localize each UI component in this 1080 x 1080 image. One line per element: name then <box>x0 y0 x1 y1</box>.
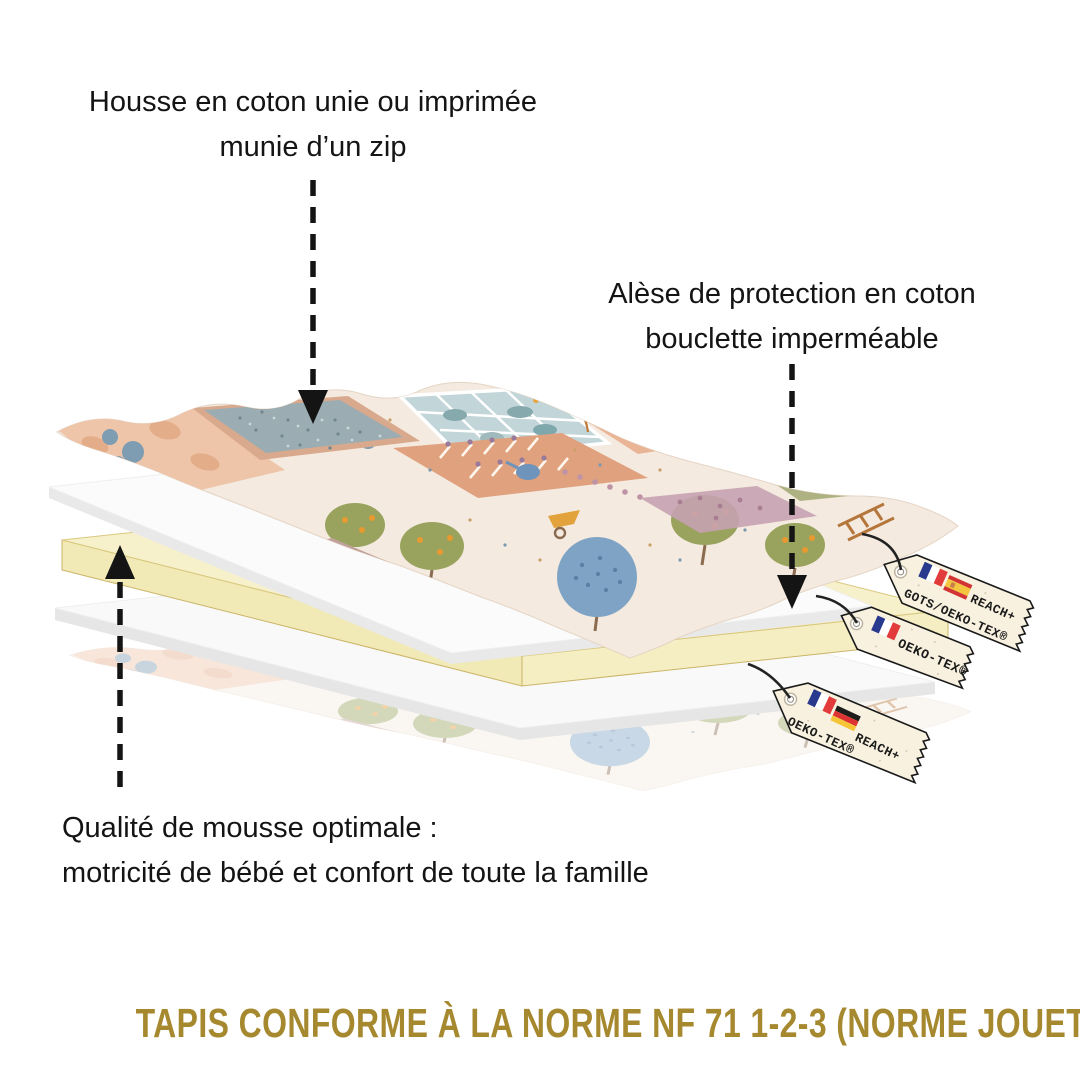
caption-protector: Alèse de protection en coton bouclette i… <box>567 272 1017 362</box>
arrow-cover <box>298 180 328 424</box>
caption-cover-line1: Housse en coton unie ou imprimée <box>38 80 588 125</box>
caption-cover: Housse en coton unie ou imprimée munie d… <box>38 80 588 170</box>
caption-protector-line2: bouclette imperméable <box>567 317 1017 362</box>
caption-cover-line2: munie d’un zip <box>38 125 588 170</box>
caption-foam: Qualité de mousse optimale : motricité d… <box>62 806 802 896</box>
caption-foam-line1: Qualité de mousse optimale : <box>62 806 802 851</box>
infographic-canvas: REACH+ GOTS/OEKO-TEX® OEKO-TEX® <box>0 0 1080 1080</box>
caption-foam-line2: motricité de bébé et confort de toute la… <box>62 851 802 896</box>
conformity-banner-text: TAPIS CONFORME À LA NORME NF 71 1-2-3 (N… <box>136 1000 1080 1047</box>
conformity-banner: TAPIS CONFORME À LA NORME NF 71 1-2-3 (N… <box>0 1000 1080 1047</box>
caption-protector-line1: Alèse de protection en coton <box>567 272 1017 317</box>
